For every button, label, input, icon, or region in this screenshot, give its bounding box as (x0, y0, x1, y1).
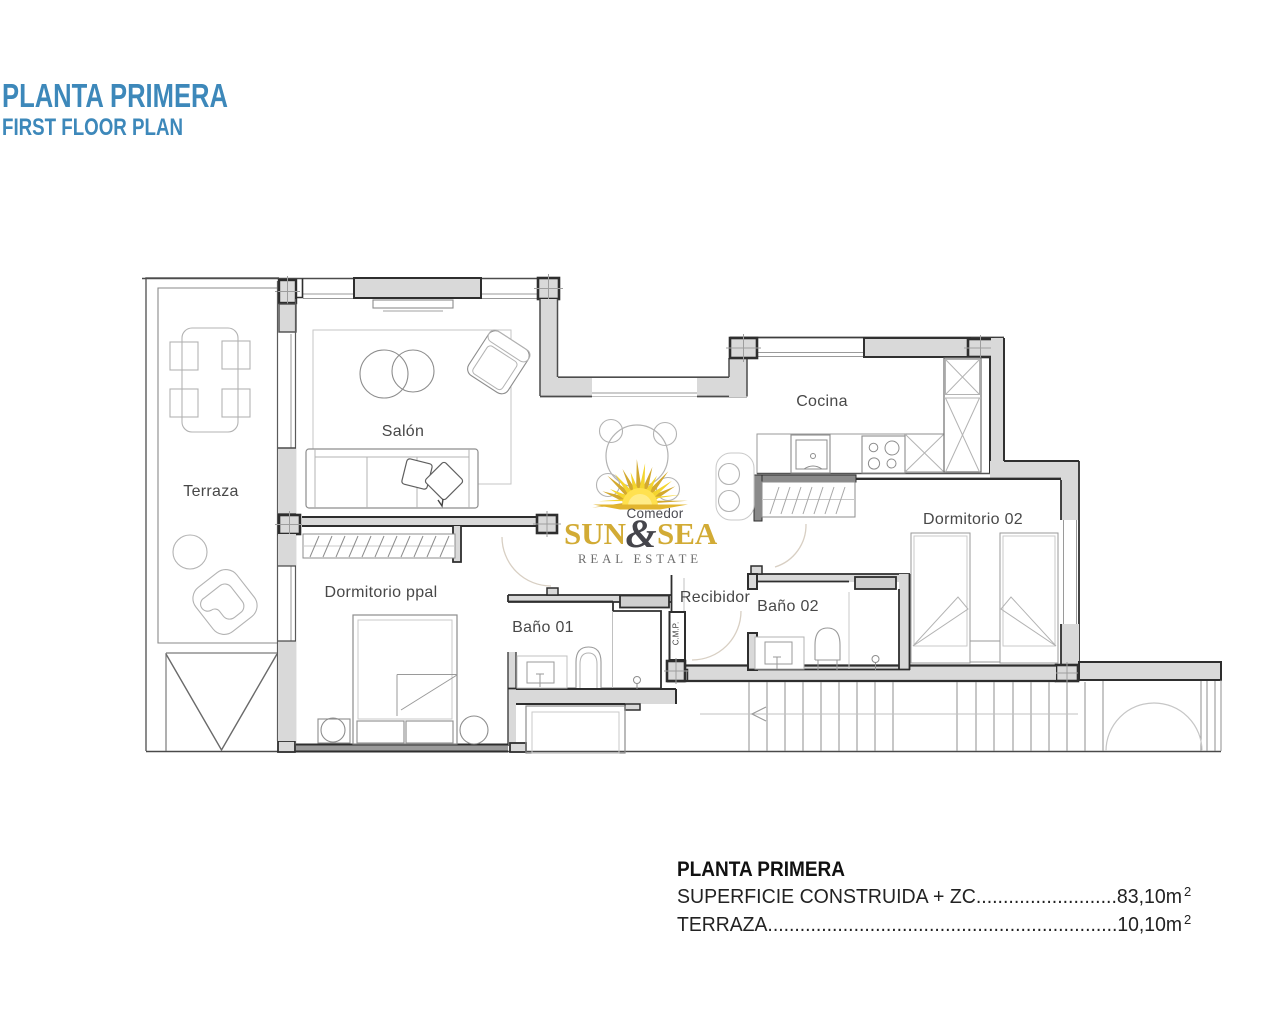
svg-text:Salón: Salón (382, 423, 424, 440)
svg-text:PLANTA PRIMERA: PLANTA PRIMERA (677, 858, 845, 881)
svg-text:Terraza: Terraza (183, 483, 238, 500)
svg-text:Dormitorio ppal: Dormitorio ppal (325, 584, 438, 601)
svg-text:Dormitorio 02: Dormitorio 02 (923, 511, 1023, 528)
svg-text:2: 2 (1184, 884, 1191, 899)
svg-text:&: & (625, 511, 656, 556)
svg-text:FIRST FLOOR PLAN: FIRST FLOOR PLAN (2, 114, 183, 141)
svg-text:Baño 02: Baño 02 (757, 598, 819, 615)
svg-text:REAL ESTATE: REAL ESTATE (578, 551, 702, 566)
svg-text:SUN: SUN (564, 516, 626, 551)
svg-text:TERRAZA.......................: TERRAZA.................................… (677, 914, 1182, 936)
svg-text:SEA: SEA (657, 516, 718, 551)
svg-text:PLANTA PRIMERA: PLANTA PRIMERA (2, 77, 228, 114)
svg-text:Cocina: Cocina (796, 393, 848, 410)
svg-text:C.M.P.: C.M.P. (672, 622, 681, 645)
svg-text:SUPERFICIE CONSTRUIDA + ZC....: SUPERFICIE CONSTRUIDA + ZC..............… (677, 886, 1182, 908)
svg-text:Baño 01: Baño 01 (512, 619, 574, 636)
svg-text:Recibidor: Recibidor (680, 589, 751, 606)
svg-text:2: 2 (1184, 912, 1191, 927)
